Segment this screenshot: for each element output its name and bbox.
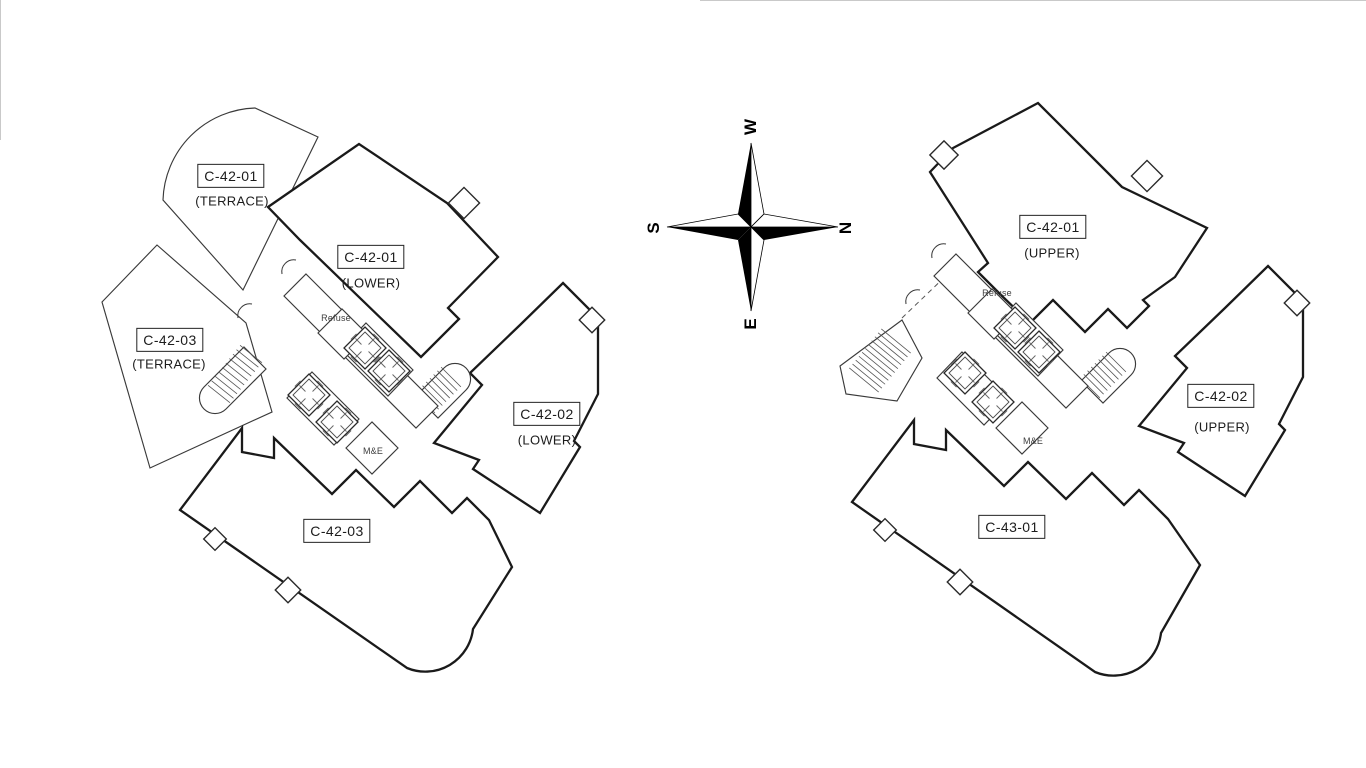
compass-label-west: W — [741, 119, 761, 135]
unit-outline-c4301 — [852, 420, 1200, 676]
unit-box-c4202-upper: C-42-02 — [1187, 384, 1254, 408]
door-arc — [932, 244, 946, 258]
unit-sub-c4203-terrace: (TERRACE) — [132, 357, 205, 372]
unit-outline-c4202-upper — [1139, 266, 1303, 496]
refuse-room-label: Refuse — [982, 288, 1012, 298]
unit-sub-c4201-upper: (UPPER) — [1024, 246, 1080, 261]
compass-label-north: N — [836, 222, 856, 234]
unit-outline-c4203 — [180, 428, 512, 672]
unit-sub-c4202-upper: (UPPER) — [1194, 420, 1250, 435]
plan-drawing — [0, 0, 1366, 768]
unit-sub-c4202-lower: (LOWER) — [518, 433, 576, 448]
compass-label-south: S — [644, 222, 664, 233]
door-arc — [238, 304, 252, 318]
scan-artifact — [0, 0, 1, 140]
refuse-room-label: Refuse — [321, 313, 351, 323]
scan-artifact — [700, 0, 1366, 1]
mech-room-label: M&E — [363, 446, 383, 456]
left-plan-drawing — [102, 108, 605, 672]
unit-box-c4202-lower: C-42-02 — [513, 402, 580, 426]
unit-sub-c4201-terrace: (TERRACE) — [195, 194, 268, 209]
compass-label-east: E — [741, 318, 761, 329]
unit-box-c4301: C-43-01 — [978, 515, 1045, 539]
staircase-west-block — [840, 320, 922, 401]
mech-room-label: M&E — [1023, 436, 1043, 446]
unit-sub-c4201-lower: (LOWER) — [342, 276, 400, 291]
unit-box-c4203-terrace: C-42-03 — [136, 328, 203, 352]
facade-bay — [1131, 160, 1162, 191]
compass-rose-icon — [667, 143, 838, 311]
door-arc — [906, 290, 920, 304]
unit-box-c4201-terrace: C-42-01 — [197, 164, 264, 188]
door-arc — [282, 260, 296, 274]
unit-box-c4201-lower: C-42-01 — [337, 245, 404, 269]
staircase-east — [1080, 348, 1135, 403]
unit-box-c4203-main: C-42-03 — [303, 519, 370, 543]
floor-plan-sheet: W S N E C-42-01 (TERRACE) C-42-01 (LOWER… — [0, 0, 1366, 768]
unit-box-c4201-upper: C-42-01 — [1019, 215, 1086, 239]
